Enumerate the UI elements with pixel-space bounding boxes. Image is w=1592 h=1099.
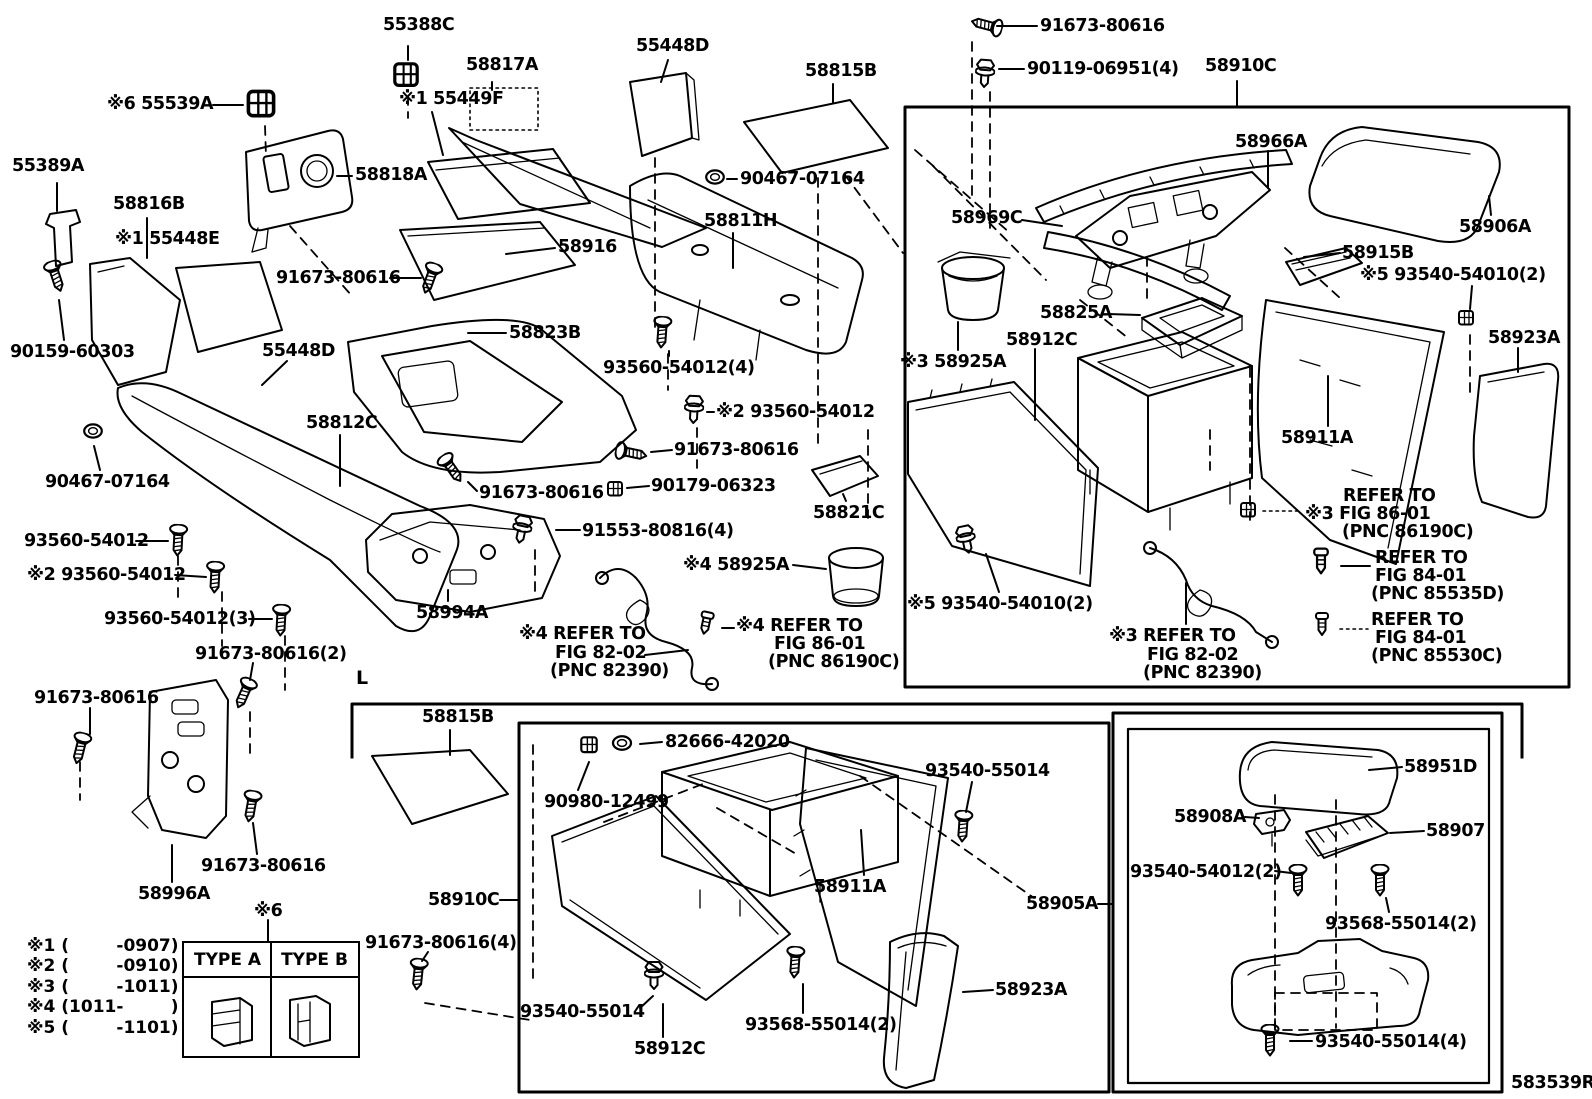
part-label-82666: 82666-42020: [665, 733, 790, 751]
grommet-icon: [84, 424, 102, 437]
bolt-icon: [954, 524, 978, 554]
part-label-90467-top: 90467-07164: [740, 170, 865, 188]
part-58823b-console-panel: [348, 320, 636, 473]
part-label-55389a: 55389A: [12, 157, 84, 175]
note-refer-fig84-b-3: (PNC 85530C): [1371, 647, 1502, 665]
part-label-55448e: ※1 55448E: [115, 230, 220, 248]
note-refer-fig82-right-2: FIG 82-02: [1147, 646, 1238, 664]
screw-icon: [408, 958, 428, 991]
part-label-93560-1: 93560-54012: [24, 532, 149, 550]
part-label-55448d-top: 55448D: [636, 37, 709, 55]
parts-diagram-console-box: 55388C 58817A ※1 55449F ※6 55539A 55389A…: [0, 0, 1592, 1099]
part-58908a-hinge: [1254, 810, 1290, 846]
part-label-90179: 90179-06323: [651, 477, 776, 495]
part-label-93560-x2r: ※2 93560-54012: [716, 403, 875, 421]
part-label-93540-bot: ※5 93540-54010(2): [907, 595, 1093, 613]
part-label-91673-4: 91673-80616(4): [365, 934, 517, 952]
part-label-58910c-bot: 58910C: [428, 891, 499, 909]
part-58923a-panel-bottom: [884, 933, 958, 1088]
part-58811h-side-panel: [630, 174, 863, 360]
screw-icon: [1290, 865, 1307, 896]
legend-row-5: ※5 ( -1101): [27, 1018, 179, 1038]
clip-icon: [608, 482, 622, 496]
figure-code: 583539R: [1511, 1074, 1592, 1092]
footnote-marker-6: ※6: [254, 902, 282, 920]
part-label-93540-l: 93540-55014: [520, 1003, 645, 1021]
note-refer-fig84-b-2: FIG 84-01: [1375, 629, 1466, 647]
part-label-58812c: 58812C: [306, 414, 377, 432]
part-label-91673-mid: 91673-80616: [674, 441, 799, 459]
note-refer-fig82-left-1: ※4 REFER TO: [519, 625, 646, 643]
part-58818a-switch-panel: [246, 130, 352, 252]
note-refer-fig84-a-3: (PNC 85535D): [1371, 585, 1504, 603]
part-58966a-rail: [1036, 150, 1292, 222]
screw-icon: [786, 946, 805, 978]
screw-icon: [169, 524, 188, 556]
part-label-93568-br: 93568-55014(2): [1325, 915, 1477, 933]
type-table: TYPE A TYPE B: [182, 941, 360, 1058]
part-label-93540-4: 93540-55014(4): [1315, 1033, 1467, 1051]
dashed-lines: [80, 42, 1470, 1035]
part-label-58951d: 58951D: [1404, 758, 1477, 776]
note-refer-fig82-right-3: (PNC 82390): [1143, 664, 1262, 682]
part-label-93540-top: ※5 93540-54010(2): [1360, 266, 1546, 284]
part-label-90119: 90119-06951(4): [1027, 60, 1179, 78]
part-55448e-pad: [176, 262, 282, 352]
part-55389a-bracket: [46, 210, 80, 266]
part-55449f-visor: [428, 149, 590, 219]
part-label-91673-c: 91673-80616: [479, 484, 604, 502]
clip-icon: [1459, 311, 1473, 325]
part-label-58816b: 58816B: [113, 195, 185, 213]
part-label-58915b: 58915B: [1342, 244, 1414, 262]
legend-row-4: ※4 (1011- ): [27, 997, 179, 1017]
legend-row-2: ※2 ( -0910): [27, 956, 179, 976]
note-refer-fig84-b-1: REFER TO: [1371, 611, 1464, 629]
part-58912c-panel-bottom: [552, 796, 790, 1000]
part-label-90980: 90980-12499: [544, 793, 669, 811]
part-label-58994a: 58994A: [416, 604, 488, 622]
note-refer-fig82-left-3: (PNC 82390): [550, 662, 669, 680]
part-58951d-armrest-lid: [1240, 742, 1398, 814]
part-label-58823b: 58823B: [509, 324, 581, 342]
part-label-91673-a: 91673-80616: [276, 269, 401, 287]
part-label-55449f: ※1 55449F: [399, 90, 504, 108]
note-refer-fig82-right-1: ※3 REFER TO: [1109, 627, 1236, 645]
part-console-body-right: [1078, 332, 1252, 530]
part-label-58911a-bot: 58911A: [814, 878, 886, 896]
clip-icon: [1241, 503, 1255, 517]
grommet-icon: [706, 170, 724, 183]
part-label-58912c-bot: 58912C: [634, 1040, 705, 1058]
screw-icon: [272, 604, 291, 636]
note-refer-fig86-right-1: REFER TO: [1343, 487, 1436, 505]
part-label-55388c: 55388C: [383, 16, 454, 34]
diagram-line-art: [0, 0, 1592, 1099]
part-label-58996a: 58996A: [138, 885, 210, 903]
legend-row-3: ※3 ( -1011): [27, 977, 179, 997]
type-a-header: TYPE A: [184, 943, 271, 976]
part-label-58910c-top: 58910C: [1205, 57, 1276, 75]
note-refer-fig86-left-3: (PNC 86190C): [768, 653, 899, 671]
part-58923a-panel-right: [1474, 364, 1559, 518]
part-label-93560-3: 93560-54012(3): [104, 610, 256, 628]
part-label-58916: 58916: [558, 238, 617, 256]
screw-icon: [240, 789, 262, 822]
part-label-90467-bot: 90467-07164: [45, 473, 170, 491]
part-label-58923a-right: 58923A: [1488, 329, 1560, 347]
part-base-frame: [1232, 939, 1428, 1035]
bolt-icon: [684, 396, 704, 424]
clip-icon: [581, 737, 596, 752]
note-refer-fig86-left-2: FIG 86-01: [774, 635, 865, 653]
part-label-58811h: 58811H: [704, 212, 777, 230]
note-refer-fig86-left-1: ※4 REFER TO: [736, 617, 863, 635]
part-58925a-cup-right: [938, 252, 1010, 320]
applicability-legend: ※1 ( -0907) ※2 ( -0910) ※3 ( -1011) ※4 (…: [27, 936, 179, 1038]
screw-icon: [206, 561, 225, 593]
bolt-icon: [975, 59, 996, 87]
screw-icon: [230, 675, 258, 710]
part-label-90159: 90159-60303: [10, 343, 135, 361]
note-refer-fig82-left-2: FIG 82-02: [555, 644, 646, 662]
part-label-93540-54012-2: 93540-54012(2): [1130, 863, 1282, 881]
part-label-58925a-x4: ※4 58925A: [683, 556, 789, 574]
part-label-93568-bot: 93568-55014(2): [745, 1016, 897, 1034]
pin-icon: [698, 611, 714, 635]
pin-icon: [1314, 549, 1328, 574]
clip-icon: [395, 64, 417, 86]
part-label-91673-d: 91673-80616: [34, 689, 159, 707]
part-55448d-top-pad: [630, 73, 699, 156]
note-refer-fig86-right-3: (PNC 86190C): [1342, 523, 1473, 541]
part-58825a-tray: [1142, 298, 1242, 358]
part-label-58908a: 58908A: [1174, 808, 1246, 826]
part-label-58911a-right: 58911A: [1281, 429, 1353, 447]
part-label-91553: 91553-80816(4): [582, 522, 734, 540]
part-label-93560-4: 93560-54012(4): [603, 359, 755, 377]
part-label-55448d-mid: 55448D: [262, 342, 335, 360]
grommet-icon: [613, 736, 631, 750]
part-label-91673-e: 91673-80616: [201, 857, 326, 875]
screw-icon: [1372, 865, 1389, 896]
part-frame-assembly-right: [1076, 172, 1270, 299]
note-refer-fig84-a-1: REFER TO: [1375, 549, 1468, 567]
part-label-58815b-bot: 58815B: [422, 708, 494, 726]
type-b-header: TYPE B: [271, 943, 358, 976]
part-label-58925a-x3: ※3 58925A: [900, 353, 1006, 371]
part-58816b-panel: [90, 258, 180, 385]
part-label-58825a: 58825A: [1040, 304, 1112, 322]
part-label-91673-2: 91673-80616(2): [195, 645, 347, 663]
screw-icon: [954, 810, 973, 842]
screw-icon: [68, 731, 92, 765]
part-58812c-rear-panel: [118, 383, 459, 631]
part-label-58905a: 58905A: [1026, 895, 1098, 913]
part-label-58818a: 58818A: [355, 166, 427, 184]
pin-icon: [1316, 613, 1328, 635]
part-label-58815b-top: 58815B: [805, 62, 877, 80]
part-label-58969c: 58969C: [951, 209, 1022, 227]
part-label-58907: 58907: [1426, 822, 1485, 840]
part-58815b-top-pad: [744, 100, 888, 173]
part-label-58923a-bot: 58923A: [995, 981, 1067, 999]
part-label-93560-x2l: ※2 93560-54012: [27, 566, 186, 584]
part-58925a-cup-left: [829, 548, 883, 606]
part-label-58966a: 58966A: [1235, 133, 1307, 151]
part-label-91673-topright: 91673-80616: [1040, 17, 1165, 35]
note-refer-fig84-a-2: FIG 84-01: [1375, 567, 1466, 585]
part-58912c-panel-right: [908, 379, 1098, 586]
part-label-55539a: ※6 55539A: [107, 95, 213, 113]
marker-l: L: [356, 669, 368, 689]
part-label-58906a: 58906A: [1459, 218, 1531, 236]
part-label-58912c-right: 58912C: [1006, 331, 1077, 349]
part-label-58817a: 58817A: [466, 56, 538, 74]
part-58907-lock: [1306, 816, 1388, 858]
part-label-93540-r: 93540-55014: [925, 762, 1050, 780]
note-refer-fig86-right-2: ※3 FIG 86-01: [1305, 505, 1430, 523]
part-58916-pad: [400, 222, 575, 300]
part-label-58821c: 58821C: [813, 504, 884, 522]
clip-icon: [248, 91, 273, 115]
part-58815b-pad-bottom: [372, 750, 508, 824]
legend-row-1: ※1 ( -0907): [27, 936, 179, 956]
